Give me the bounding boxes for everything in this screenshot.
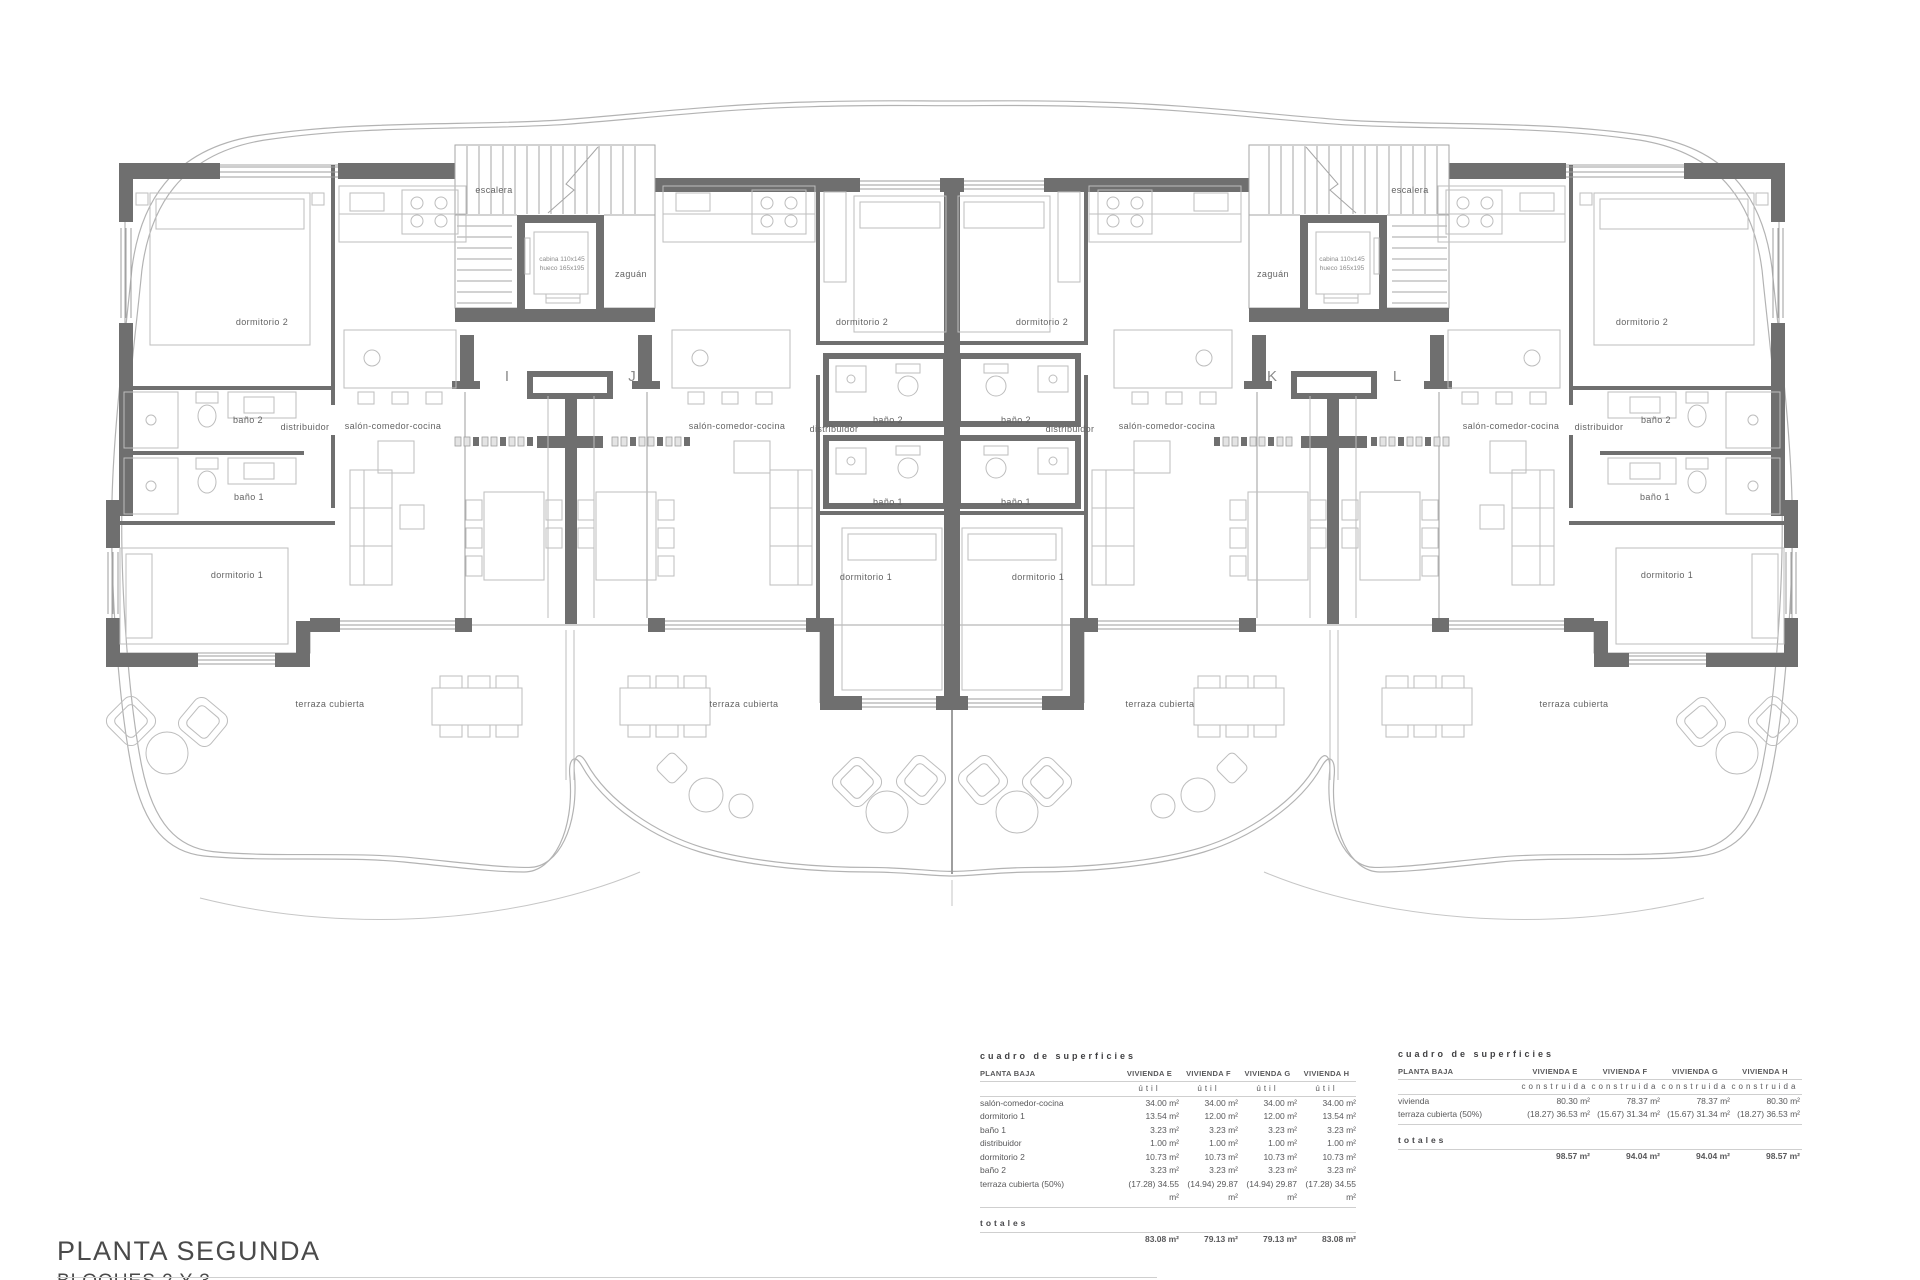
- area-value: (15.67) 31.34 m²: [1590, 1108, 1660, 1122]
- area-value: 1.00 m²: [1238, 1137, 1297, 1151]
- room-label-dormitorio2-l: dormitorio 2: [1616, 317, 1668, 327]
- label-zaguan-2: zaguán: [1257, 269, 1289, 279]
- label-elevator-cabina-2: cabina 110x145: [1319, 256, 1365, 263]
- superficies-table-util: cuadro de superficies PLANTA BAJA VIVIEN…: [980, 1050, 1356, 1247]
- row-label: distribuidor: [980, 1137, 1120, 1151]
- superficies-table-construida: cuadro de superficies PLANTA BAJA VIVIEN…: [1398, 1048, 1802, 1164]
- title-rule: [57, 1277, 1157, 1278]
- room-label-dormitorio2-j: dormitorio 2: [836, 317, 888, 327]
- area-value: (17.28) 34.55 m²: [1120, 1178, 1179, 1205]
- table-row: dormitorio 1 13.54 m² 12.00 m² 12.00 m² …: [980, 1110, 1356, 1124]
- subheader-cell: útil: [1179, 1082, 1238, 1096]
- total-value: 79.13 m²: [1179, 1233, 1238, 1247]
- col-header: VIVIENDA H: [1297, 1067, 1356, 1081]
- room-label-bano1-i: baño 1: [234, 492, 264, 502]
- area-value: 1.00 m²: [1120, 1137, 1179, 1151]
- room-label-dormitorio2-i: dormitorio 2: [236, 317, 288, 327]
- room-label-salon-i: salón-comedor-cocina: [345, 421, 442, 431]
- room-label-distribuidor-l: distribuidor: [1575, 422, 1624, 432]
- room-label-salon-l: salón-comedor-cocina: [1463, 421, 1560, 431]
- area-value: (15.67) 31.34 m²: [1660, 1108, 1730, 1122]
- room-label-dormitorio1-i: dormitorio 1: [211, 570, 263, 580]
- area-value: 10.73 m²: [1238, 1151, 1297, 1165]
- label-escalera-2: escalera: [1391, 185, 1428, 195]
- area-value: (18.27) 36.53 m²: [1730, 1108, 1800, 1122]
- unit-letter-j: J: [628, 368, 636, 385]
- row-label: salón-comedor-cocina: [980, 1097, 1120, 1111]
- table-row: terraza cubierta (50%) (17.28) 34.55 m² …: [980, 1178, 1356, 1205]
- room-label-dormitorio2-k: dormitorio 2: [1016, 317, 1068, 327]
- table-body: salón-comedor-cocina 34.00 m² 34.00 m² 3…: [980, 1097, 1356, 1208]
- subheader-cell: construida: [1730, 1080, 1800, 1094]
- col-header: VIVIENDA G: [1238, 1067, 1297, 1081]
- table-row: vivienda 80.30 m² 78.37 m² 78.37 m² 80.3…: [1398, 1095, 1802, 1109]
- room-label-distribuidor-i: distribuidor: [281, 422, 330, 432]
- area-value: (14.94) 29.87 m²: [1179, 1178, 1238, 1205]
- floor-plan-sheet: dormitorio 2 baño 2 distribuidor baño 1 …: [0, 0, 1920, 1280]
- table-heading: cuadro de superficies: [980, 1050, 1356, 1064]
- total-value: 98.57 m²: [1520, 1150, 1590, 1164]
- table-subheader-row: construida construida construida constru…: [1398, 1080, 1802, 1095]
- total-value: 83.08 m²: [1297, 1233, 1356, 1247]
- totals-row: 98.57 m² 94.04 m² 94.04 m² 98.57 m²: [1398, 1150, 1802, 1164]
- area-value: 3.23 m²: [1179, 1124, 1238, 1138]
- room-label-salon-k: salón-comedor-cocina: [1119, 421, 1216, 431]
- area-value: 3.23 m²: [1238, 1124, 1297, 1138]
- room-label-bano2-i: baño 2: [233, 415, 263, 425]
- label-elevator-hueco-2: hueco 165x195: [1320, 265, 1365, 272]
- subheader-cell: construida: [1590, 1080, 1660, 1094]
- total-value: 79.13 m²: [1238, 1233, 1297, 1247]
- room-label-bano2-k: baño 2: [1001, 415, 1031, 425]
- subheader-cell: construida: [1520, 1080, 1590, 1094]
- room-label-salon-j: salón-comedor-cocina: [689, 421, 786, 431]
- table-header-row: PLANTA BAJA VIVIENDA E VIVIENDA F VIVIEN…: [980, 1067, 1356, 1083]
- table-body: vivienda 80.30 m² 78.37 m² 78.37 m² 80.3…: [1398, 1095, 1802, 1125]
- area-value: 3.23 m²: [1120, 1164, 1179, 1178]
- row-label: terraza cubierta (50%): [980, 1178, 1120, 1192]
- building-half: [103, 145, 952, 874]
- table-header-row: PLANTA BAJA VIVIENDA E VIVIENDA F VIVIEN…: [1398, 1065, 1802, 1081]
- row-label: terraza cubierta (50%): [1398, 1108, 1520, 1122]
- totals-row: 83.08 m² 79.13 m² 79.13 m² 83.08 m²: [980, 1233, 1356, 1247]
- label-elevator-cabina-1: cabina 110x145: [539, 256, 585, 263]
- room-label-bano1-j: baño 1: [873, 497, 903, 507]
- col-header: VIVIENDA F: [1179, 1067, 1238, 1081]
- area-value: 12.00 m²: [1238, 1110, 1297, 1124]
- area-value: 3.23 m²: [1297, 1164, 1356, 1178]
- area-value: 80.30 m²: [1520, 1095, 1590, 1109]
- table-row: distribuidor 1.00 m² 1.00 m² 1.00 m² 1.0…: [980, 1137, 1356, 1151]
- area-value: 3.23 m²: [1120, 1124, 1179, 1138]
- area-value: 1.00 m²: [1297, 1137, 1356, 1151]
- label-escalera-1: escalera: [475, 185, 512, 195]
- area-value: (18.27) 36.53 m²: [1520, 1108, 1590, 1122]
- apartment-centre-furniture: [663, 186, 946, 690]
- room-label-bano1-l: baño 1: [1640, 492, 1670, 502]
- label-terraza-2: terraza cubierta: [710, 699, 779, 709]
- col-header: VIVIENDA E: [1520, 1065, 1590, 1079]
- total-value: 83.08 m²: [1120, 1233, 1179, 1247]
- row-label: baño 2: [980, 1164, 1120, 1178]
- sheet-title: PLANTA SEGUNDA BLOQUES 2 Y 3: [57, 1236, 321, 1280]
- label-terraza-3: terraza cubierta: [1126, 699, 1195, 709]
- table-row: baño 2 3.23 m² 3.23 m² 3.23 m² 3.23 m²: [980, 1164, 1356, 1178]
- walkway-wall: [565, 396, 577, 624]
- col-header: VIVIENDA H: [1730, 1065, 1800, 1079]
- unit-letter-i: I: [505, 368, 509, 385]
- label-terraza-1: terraza cubierta: [296, 699, 365, 709]
- label-zaguan-1: zaguán: [615, 269, 647, 279]
- room-label-bano1-k: baño 1: [1001, 497, 1031, 507]
- area-value: 10.73 m²: [1297, 1151, 1356, 1165]
- row-label: dormitorio 2: [980, 1151, 1120, 1165]
- area-value: 34.00 m²: [1238, 1097, 1297, 1111]
- entry-porch: [452, 335, 690, 780]
- area-value: 78.37 m²: [1590, 1095, 1660, 1109]
- table-row: baño 1 3.23 m² 3.23 m² 3.23 m² 3.23 m²: [980, 1124, 1356, 1138]
- area-value: 3.23 m²: [1238, 1164, 1297, 1178]
- subheader-cell: construida: [1660, 1080, 1730, 1094]
- table-row: salón-comedor-cocina 34.00 m² 34.00 m² 3…: [980, 1097, 1356, 1111]
- unit-letter-l: L: [1393, 368, 1401, 385]
- total-value: 94.04 m²: [1660, 1150, 1730, 1164]
- room-label-dormitorio1-k: dormitorio 1: [1012, 572, 1064, 582]
- area-value: (17.28) 34.55 m²: [1297, 1178, 1356, 1205]
- floor-plan-svg: dormitorio 2 baño 2 distribuidor baño 1 …: [0, 0, 1920, 1040]
- row-label: vivienda: [1398, 1095, 1520, 1109]
- col-header: PLANTA BAJA: [1398, 1065, 1520, 1079]
- area-value: (14.94) 29.87 m²: [1238, 1178, 1297, 1205]
- area-value: 10.73 m²: [1179, 1151, 1238, 1165]
- area-value: 34.00 m²: [1120, 1097, 1179, 1111]
- apartment-wing-furniture: [120, 186, 466, 644]
- col-header: PLANTA BAJA: [980, 1067, 1120, 1081]
- total-value: 94.04 m²: [1590, 1150, 1660, 1164]
- room-label-distribuidor-j: distribuidor: [810, 424, 859, 434]
- col-header: VIVIENDA G: [1660, 1065, 1730, 1079]
- table-heading: cuadro de superficies: [1398, 1048, 1802, 1062]
- planter: [530, 374, 610, 396]
- room-label-distribuidor-k: distribuidor: [1046, 424, 1095, 434]
- area-value: 12.00 m²: [1179, 1110, 1238, 1124]
- area-value: 34.00 m²: [1297, 1097, 1356, 1111]
- area-value: 13.54 m²: [1297, 1110, 1356, 1124]
- row-label: baño 1: [980, 1124, 1120, 1138]
- area-value: 3.23 m²: [1179, 1164, 1238, 1178]
- col-header: VIVIENDA F: [1590, 1065, 1660, 1079]
- table-row: dormitorio 2 10.73 m² 10.73 m² 10.73 m² …: [980, 1151, 1356, 1165]
- totals-label: totales: [1398, 1134, 1802, 1151]
- area-value: 78.37 m²: [1660, 1095, 1730, 1109]
- label-elevator-hueco-1: hueco 165x195: [540, 265, 585, 272]
- building-half-mirrored: [952, 145, 1801, 874]
- area-value: 13.54 m²: [1120, 1110, 1179, 1124]
- label-terraza-4: terraza cubierta: [1540, 699, 1609, 709]
- area-value: 10.73 m²: [1120, 1151, 1179, 1165]
- subheader-cell: útil: [1297, 1082, 1356, 1096]
- subheader-cell: útil: [1120, 1082, 1179, 1096]
- room-label-dormitorio1-j: dormitorio 1: [840, 572, 892, 582]
- subheader-cell: útil: [1238, 1082, 1297, 1096]
- unit-letter-k: K: [1267, 368, 1277, 385]
- page-subtitle: BLOQUES 2 Y 3: [57, 1271, 321, 1280]
- col-header: VIVIENDA E: [1120, 1067, 1179, 1081]
- table-subheader-row: útil útil útil útil: [980, 1082, 1356, 1097]
- row-label: dormitorio 1: [980, 1110, 1120, 1124]
- table-row: terraza cubierta (50%) (18.27) 36.53 m² …: [1398, 1108, 1802, 1122]
- area-value: 80.30 m²: [1730, 1095, 1800, 1109]
- room-label-dormitorio1-l: dormitorio 1: [1641, 570, 1693, 580]
- page-title: PLANTA SEGUNDA: [57, 1236, 321, 1267]
- room-label-bano2-j: baño 2: [873, 415, 903, 425]
- totals-label: totales: [980, 1217, 1356, 1234]
- area-value: 34.00 m²: [1179, 1097, 1238, 1111]
- area-value: 1.00 m²: [1179, 1137, 1238, 1151]
- room-label-bano2-l: baño 2: [1641, 415, 1671, 425]
- total-value: 98.57 m²: [1730, 1150, 1800, 1164]
- area-value: 3.23 m²: [1297, 1124, 1356, 1138]
